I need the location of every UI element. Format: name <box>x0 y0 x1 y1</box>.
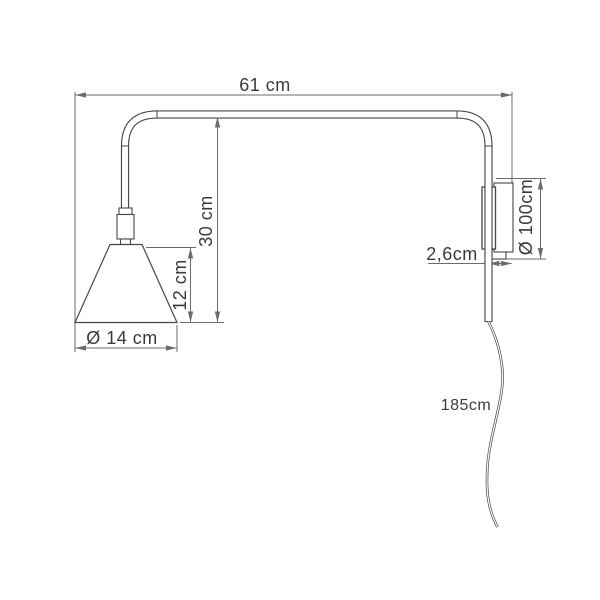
label-cable-length: 185cm <box>441 397 492 414</box>
lamp-technical-drawing: 61 cm 30 cm 12 cm Ø 14 cm 2,6cm Ø 100cm … <box>0 0 600 600</box>
joint-neck <box>121 239 131 245</box>
label-drop-height: 30 cm <box>196 195 216 247</box>
power-cable <box>487 322 503 528</box>
lamp-head <box>75 208 177 323</box>
label-shade-height: 12 cm <box>170 259 190 311</box>
label-shade-diameter: Ø 14 cm <box>86 328 158 348</box>
joint-collar <box>119 208 132 215</box>
label-arm-length: 61 cm <box>239 75 291 95</box>
lamp-shade-cone <box>75 245 177 323</box>
label-wall-plate: Ø 100cm <box>516 179 536 256</box>
dimension-diagram: 61 cm 30 cm 12 cm Ø 14 cm 2,6cm Ø 100cm … <box>0 0 600 600</box>
joint-cylinder <box>117 215 134 240</box>
dimension-labels: 61 cm 30 cm 12 cm Ø 14 cm 2,6cm Ø 100cm … <box>86 75 536 414</box>
label-bracket-depth: 2,6cm <box>426 244 478 264</box>
wall-plate <box>494 183 513 252</box>
